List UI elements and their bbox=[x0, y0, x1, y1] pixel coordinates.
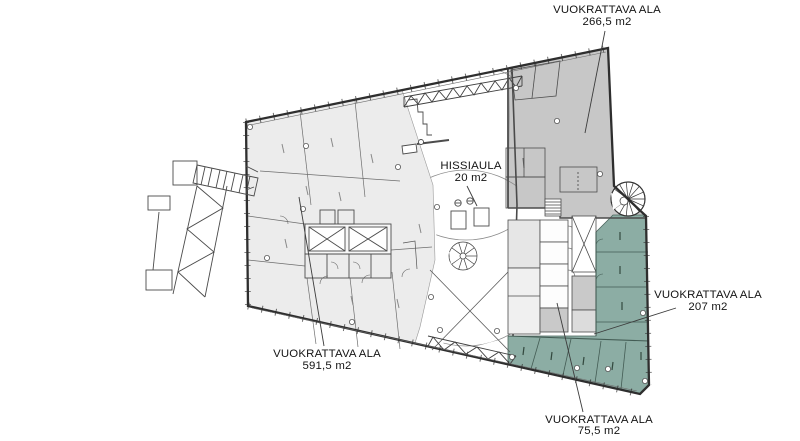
label-area-right-value: 207 m2 bbox=[688, 301, 727, 313]
spiral-stair-center bbox=[449, 242, 477, 270]
label-area-left-name: VUOKRATTAVA ALA bbox=[273, 348, 381, 360]
core-rooms bbox=[508, 199, 596, 334]
area-left-region bbox=[246, 90, 435, 343]
label-area-left-value: 591,5 m2 bbox=[302, 360, 351, 372]
stair-run-small bbox=[545, 199, 561, 216]
exterior-stair bbox=[146, 161, 258, 297]
strip-x-braces bbox=[430, 270, 510, 352]
elevator-shaft bbox=[572, 216, 596, 272]
label-area-top-value: 266,5 m2 bbox=[582, 16, 631, 28]
wc-rooms bbox=[540, 220, 575, 308]
label-lobby-name: HISSIAULA bbox=[440, 160, 502, 172]
lobby-kiosks bbox=[451, 198, 489, 229]
floor-plan-svg: VUOKRATTAVA ALA 266,5 m2 HISSIAULA 20 m2… bbox=[0, 0, 800, 441]
label-area-right-name: VUOKRATTAVA ALA bbox=[654, 289, 762, 301]
label-lobby-value: 20 m2 bbox=[455, 172, 488, 184]
label-area-bottom-value: 75,5 m2 bbox=[578, 425, 621, 437]
top-truss bbox=[404, 76, 522, 107]
floor-plan-page: VUOKRATTAVA ALA 266,5 m2 HISSIAULA 20 m2… bbox=[0, 0, 800, 441]
label-area-top-name: VUOKRATTAVA ALA bbox=[553, 4, 661, 16]
